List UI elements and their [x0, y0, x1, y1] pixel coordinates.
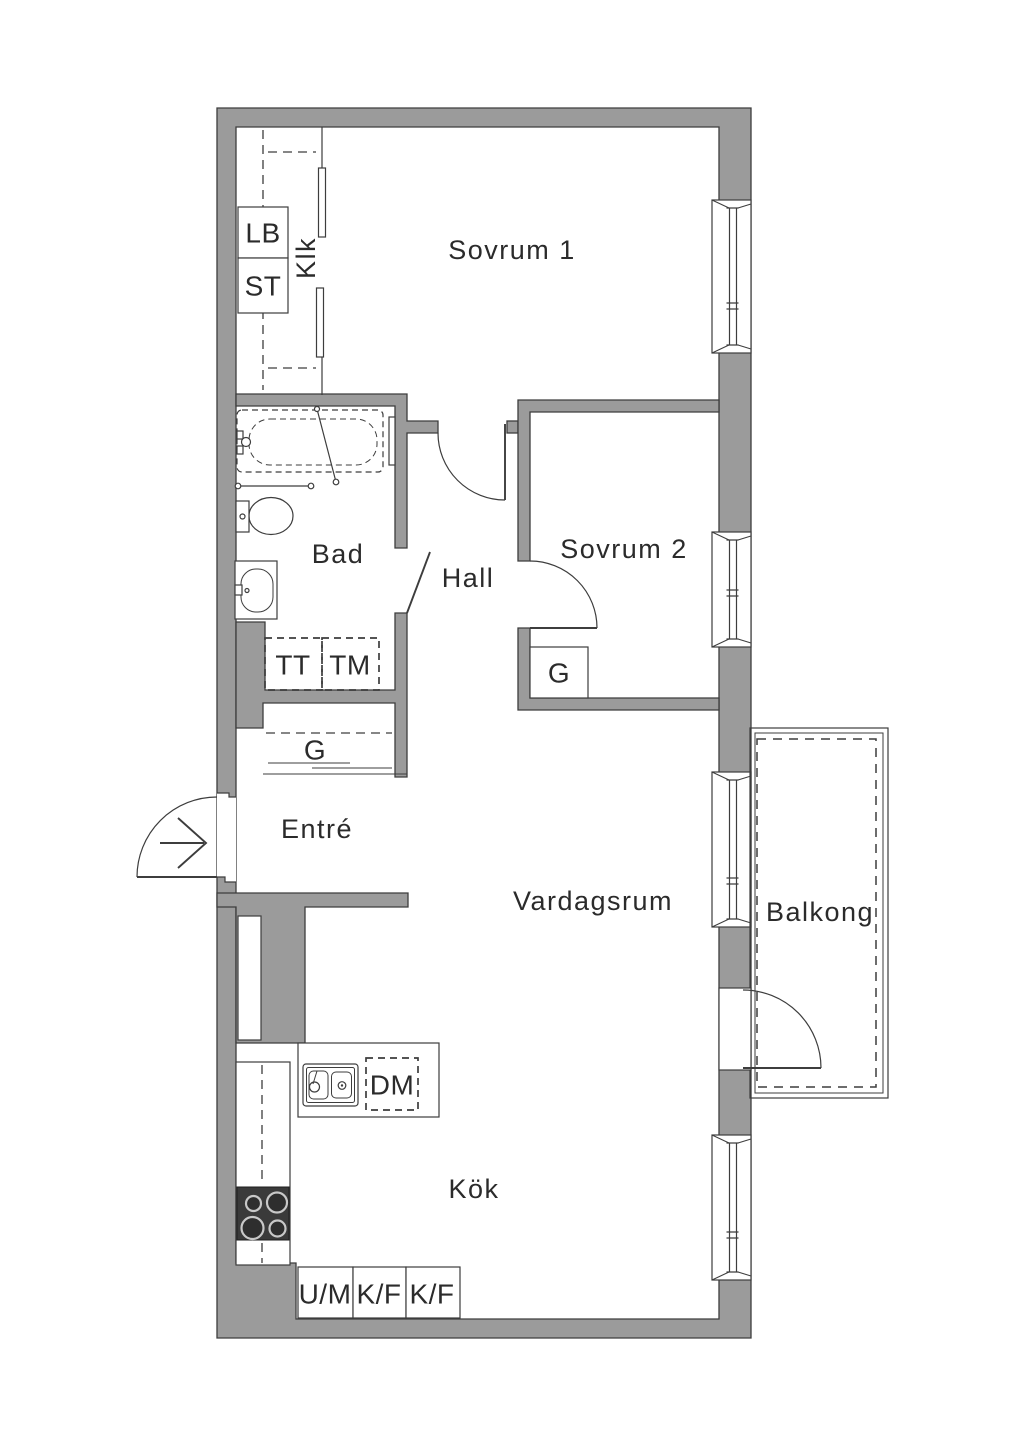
radiator: [389, 417, 395, 465]
entrance-door: [137, 793, 236, 882]
room-label-sovrum2: Sovrum 2: [560, 534, 688, 564]
room-label-klk: Klk: [291, 237, 321, 279]
window-vardagsrum: [712, 772, 751, 927]
label-kf1: K/F: [356, 1279, 401, 1310]
door-bad-leaf: [407, 552, 430, 613]
interior-doors: [407, 424, 821, 1070]
label-st: ST: [245, 271, 282, 302]
label-g-hall: G: [304, 735, 326, 766]
room-label-bad: Bad: [312, 539, 365, 569]
walls: [217, 108, 751, 1338]
window-sovrum2: [712, 532, 751, 647]
window-sovrum1: [712, 200, 751, 353]
bathtub-faucet-icon: [237, 431, 251, 454]
klk-sliding-door-leaf: [319, 168, 326, 237]
room-label-entre: Entré: [281, 814, 353, 844]
window-kok: [712, 1135, 751, 1280]
room-label-balkong: Balkong: [766, 897, 874, 927]
entrance-door-arc: [137, 797, 217, 877]
toilet: [236, 498, 293, 535]
label-lb: LB: [245, 218, 280, 249]
klk-sliding-door-leaf: [317, 288, 324, 357]
label-tt: TT: [275, 650, 310, 681]
room-label-kok: Kök: [448, 1174, 499, 1204]
entry-arrow-icon: [160, 818, 206, 868]
door-balcony-opening: [719, 988, 751, 1070]
label-tm: TM: [329, 650, 370, 681]
label-dm: DM: [370, 1070, 415, 1101]
shaft-niche: [238, 916, 261, 1040]
label-um: U/M: [299, 1279, 352, 1310]
label-kf2: K/F: [409, 1279, 454, 1310]
door-sovrum2-arc: [530, 561, 597, 628]
door-sovrum1-arc: [438, 433, 505, 500]
room-label-hall: Hall: [442, 563, 495, 593]
hall-closet: [263, 733, 407, 774]
wall-hall-north-stub: [507, 421, 518, 433]
stove: [237, 1187, 289, 1240]
outer-wall: [217, 108, 751, 1338]
label-g-sovrum2: G: [548, 658, 570, 689]
floorplan: Sovrum 1 Sovrum 2 Bad Hall Entré Vardags…: [0, 0, 1024, 1448]
room-label-sovrum1: Sovrum 1: [448, 235, 576, 265]
room-label-vardagsrum: Vardagsrum: [513, 886, 673, 916]
sink: [235, 561, 277, 619]
